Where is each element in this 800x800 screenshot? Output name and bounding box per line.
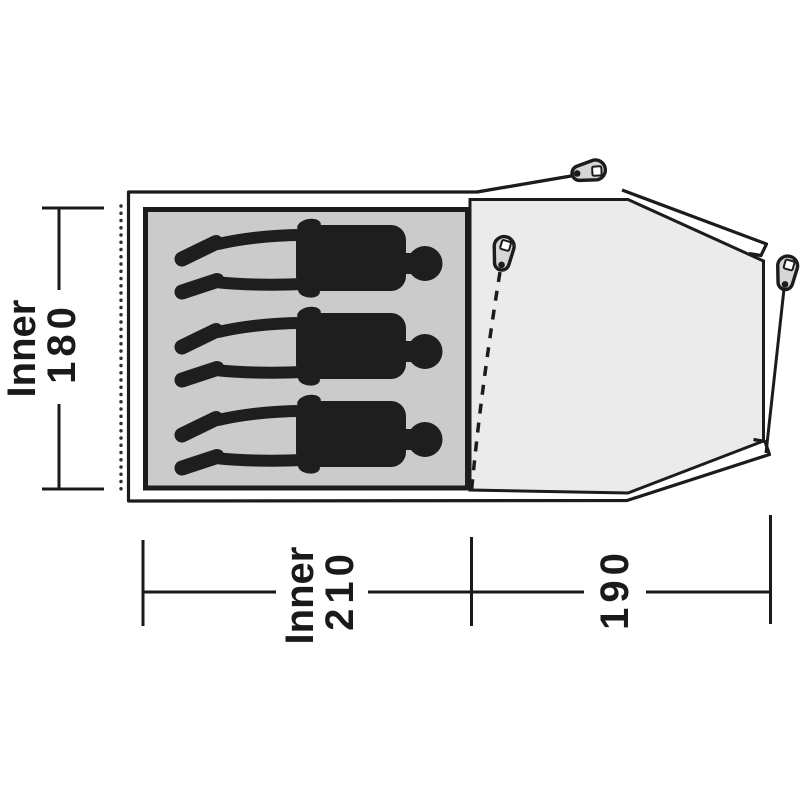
sleeper-leg (220, 371, 304, 373)
tent-peg-top (570, 158, 607, 184)
dimension-label-inner-width: Inner 210 (278, 536, 362, 645)
dimension-label-inner-height: Inner 180 (0, 289, 84, 398)
dimension-bottom (143, 515, 771, 626)
peg-hole (500, 240, 511, 251)
sleeper-torso (296, 313, 406, 379)
sleeper-leg (220, 283, 304, 285)
guy-line-right (766, 289, 784, 453)
sleeper-torso (296, 401, 406, 467)
tent-floorplan-diagram: Inner 180 Inner 210 190 (0, 0, 800, 800)
sleeper-torso (296, 225, 406, 291)
peg-hole (783, 259, 794, 270)
tent-floorplan-page: Inner 180 Inner 210 190 (0, 0, 800, 800)
peg-hole (592, 166, 602, 176)
dimension-label-porch-depth: 190 (593, 548, 637, 630)
tent-peg-right (774, 255, 798, 291)
sleeper-leg (220, 459, 304, 461)
guy-line-top (477, 176, 574, 193)
